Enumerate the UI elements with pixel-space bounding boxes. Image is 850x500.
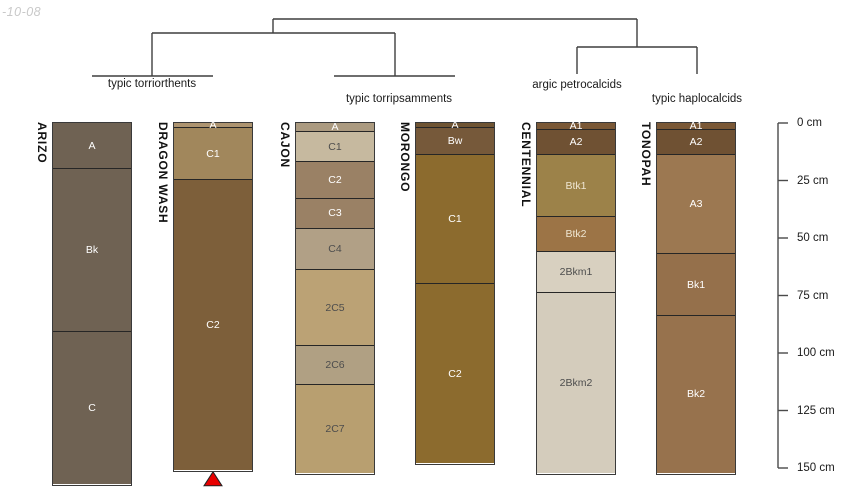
horizon: Bk <box>53 169 131 332</box>
soil-profile: A1A2Btk1Btk22Bkm12Bkm2 <box>536 122 616 475</box>
horizon: A3 <box>657 155 735 254</box>
horizon-label: C1 <box>206 149 219 159</box>
horizon-label: A <box>451 120 458 130</box>
depth-axis-lines <box>778 123 788 468</box>
horizon-label: A <box>209 120 216 130</box>
horizon-label: A <box>331 122 338 132</box>
horizon-label: 2C6 <box>325 360 344 370</box>
horizon-label: C4 <box>328 244 341 254</box>
depth-axis-tick-label: 150 cm <box>797 462 835 474</box>
horizon-label: 2Bkm1 <box>560 267 593 277</box>
horizon: A <box>296 123 374 132</box>
series-name-label: CAJON <box>278 122 292 168</box>
depth-axis-tick-label: 75 cm <box>797 290 828 302</box>
horizon-label: Bw <box>448 136 463 146</box>
horizon: Btk1 <box>537 155 615 217</box>
horizon: A1 <box>657 123 735 130</box>
horizon-label: 2Bkm2 <box>560 378 593 388</box>
horizon-label: C2 <box>206 320 219 330</box>
horizon: Btk2 <box>537 217 615 252</box>
horizon: C1 <box>416 155 494 284</box>
series-name-label: ARIZO <box>35 122 49 163</box>
horizon: 2C6 <box>296 346 374 385</box>
horizon-label: 2C5 <box>325 303 344 313</box>
horizon-label: A2 <box>570 137 583 147</box>
series-name-label: MORONGO <box>398 122 412 192</box>
horizon-label: C2 <box>328 175 341 185</box>
soil-profile: ABkC <box>52 122 132 486</box>
taxon-label: typic torripsamments <box>346 93 452 105</box>
horizon: 2Bkm1 <box>537 252 615 293</box>
horizon-label: A3 <box>690 199 703 209</box>
horizon-label: A1 <box>690 121 703 131</box>
horizon: Bk2 <box>657 316 735 472</box>
horizon: A <box>53 123 131 169</box>
horizon: A2 <box>537 130 615 155</box>
horizon: C3 <box>296 199 374 229</box>
horizon-label: C <box>88 403 96 413</box>
depth-axis-tick-label: 50 cm <box>797 232 828 244</box>
horizon: C2 <box>416 284 494 463</box>
profile-markers <box>204 472 222 486</box>
series-name-label: DRAGON WASH <box>156 122 170 223</box>
horizon-label: Bk1 <box>687 280 705 290</box>
horizon: C4 <box>296 229 374 270</box>
horizon-label: A1 <box>570 121 583 131</box>
horizon: Bw <box>416 128 494 156</box>
taxon-label: argic petrocalcids <box>532 79 621 91</box>
series-name-label: TONOPAH <box>639 122 653 187</box>
horizon-label: C1 <box>328 142 341 152</box>
horizon-label: 2C7 <box>325 424 344 434</box>
horizon-label: Btk1 <box>565 181 586 191</box>
horizon: 2C7 <box>296 385 374 472</box>
horizon: 2Bkm2 <box>537 293 615 472</box>
taxon-label: typic torriorthents <box>108 78 196 90</box>
horizon: C <box>53 332 131 484</box>
horizon-label: C3 <box>328 208 341 218</box>
depth-axis-tick-label: 0 cm <box>797 117 822 129</box>
horizon: C1 <box>174 128 252 181</box>
depth-axis-tick-label: 125 cm <box>797 405 835 417</box>
series-name-label: CENTENNIAL <box>519 122 533 207</box>
red-triangle-marker <box>204 472 222 486</box>
horizon: C2 <box>296 162 374 199</box>
horizon-label: Btk2 <box>565 229 586 239</box>
horizon: C1 <box>296 132 374 162</box>
horizon: Bk1 <box>657 254 735 316</box>
horizon: C2 <box>174 180 252 470</box>
taxon-label: typic haplocalcids <box>652 93 742 105</box>
depth-axis-tick-label: 25 cm <box>797 175 828 187</box>
horizon: A2 <box>657 130 735 155</box>
horizon-label: A2 <box>690 137 703 147</box>
horizon-label: Bk <box>86 245 98 255</box>
depth-axis-tick-label: 100 cm <box>797 347 835 359</box>
horizon-label: C2 <box>448 369 461 379</box>
soil-profile: AC1C2 <box>173 122 253 472</box>
soil-profile: AC1C2C3C42C52C62C7 <box>295 122 375 475</box>
dendrogram-lines <box>92 19 697 76</box>
horizon-label: C1 <box>448 214 461 224</box>
horizon-label: A <box>88 141 95 151</box>
horizon: A1 <box>537 123 615 130</box>
horizon-label: Bk2 <box>687 389 705 399</box>
soil-taxonomy-dendrogram-figure: -10-08 typic torriorthentstypic torripsa… <box>0 0 850 500</box>
horizon: 2C5 <box>296 270 374 346</box>
soil-profile: ABwC1C2 <box>415 122 495 465</box>
soil-profile: A1A2A3Bk1Bk2 <box>656 122 736 475</box>
